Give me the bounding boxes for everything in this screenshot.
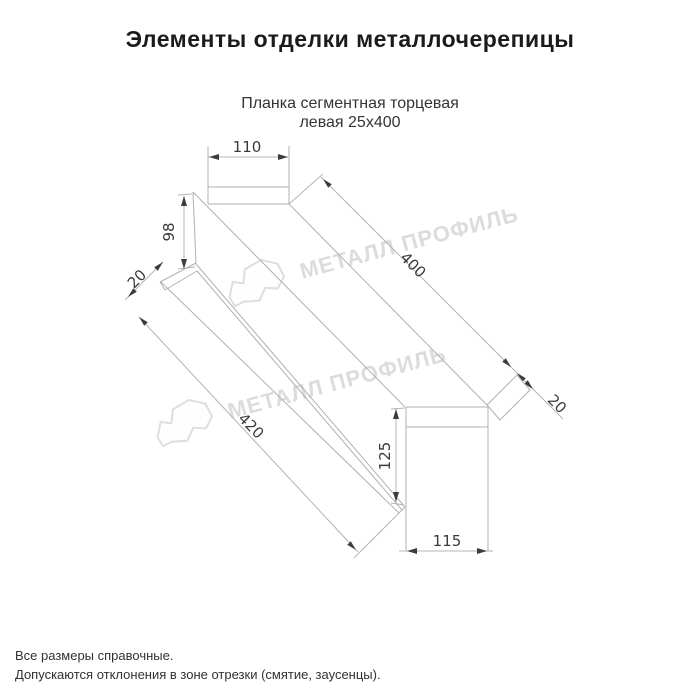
- dim-20-left: 20: [124, 262, 163, 300]
- dim-400-label: 400: [397, 249, 430, 282]
- dim-110-label: 110: [233, 138, 262, 156]
- footer-notes: Все размеры справочные. Допускаются откл…: [15, 646, 381, 684]
- footer-note-1: Все размеры справочные.: [15, 646, 381, 665]
- strip-body: [160, 192, 487, 513]
- dim-20-left-label: 20: [124, 266, 150, 292]
- dim-420: 420: [139, 317, 405, 558]
- dim-400: 400: [289, 174, 563, 419]
- right-end-fold: [487, 375, 530, 420]
- dim-125-label: 125: [376, 442, 394, 471]
- dim-98-label: 98: [160, 222, 178, 241]
- dim-20-right-label: 20: [544, 391, 570, 417]
- product-drawing-page: Элементы отделки металлочерепицы Планка …: [0, 0, 700, 700]
- right-end-profile: [399, 375, 530, 551]
- dim-420-label: 420: [235, 410, 268, 443]
- dim-115-label: 115: [433, 532, 462, 550]
- technical-drawing: 110 98 20: [0, 0, 700, 700]
- footer-note-2: Допускаются отклонения в зоне отрезки (с…: [15, 665, 381, 684]
- dim-98: 98: [160, 194, 195, 269]
